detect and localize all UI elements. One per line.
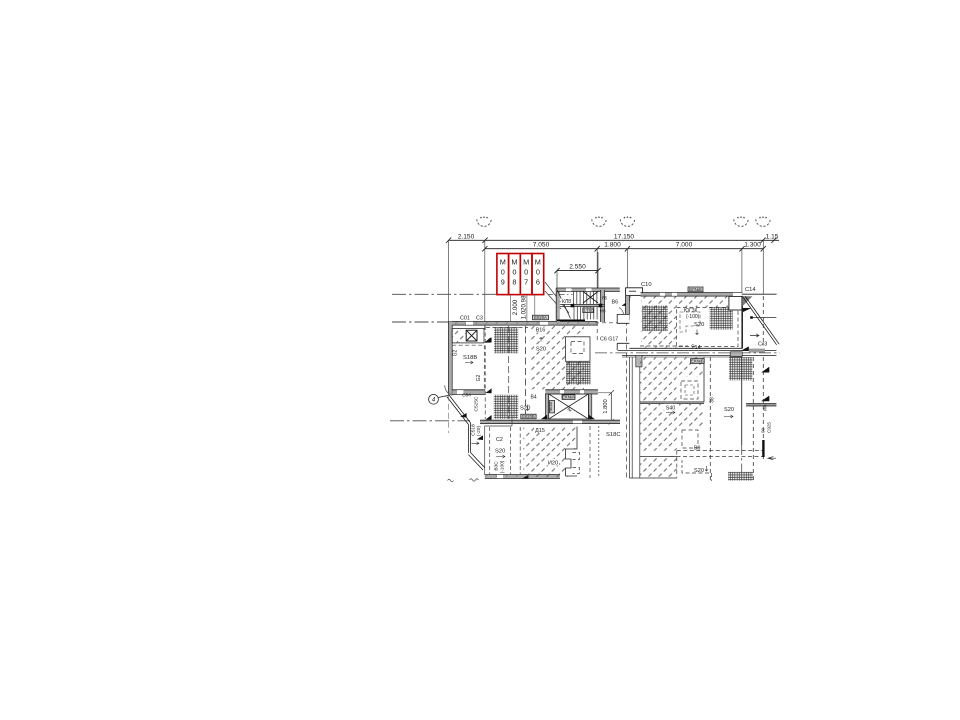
svg-text:2.150: 2.150 — [458, 233, 475, 240]
svg-text:2.550: 2.550 — [569, 263, 586, 270]
svg-text:C525C: C525C — [474, 396, 480, 411]
svg-text:S20: S20 — [724, 407, 734, 413]
svg-text:G2: G2 — [476, 374, 482, 381]
svg-text:В6: В6 — [612, 299, 619, 305]
svg-text:№ЭА: №ЭА — [548, 401, 553, 411]
svg-text:1.020.98: 1.020.98 — [521, 295, 528, 320]
svg-text:Иб: Иб — [600, 308, 606, 313]
svg-text:КЛ8: КЛ8 — [562, 299, 571, 305]
svg-text:S20: S20 — [694, 322, 704, 328]
svg-text:ЕК№А: ЕК№А — [562, 395, 575, 400]
svg-text:0.7Х0: 0.7Х0 — [583, 308, 595, 313]
svg-text:С925: С925 — [767, 422, 772, 433]
svg-text:1.300: 1.300 — [744, 242, 761, 249]
svg-text:В16: В16 — [536, 328, 546, 334]
svg-text:Им: Им — [763, 405, 768, 411]
svg-text:1.800: 1.800 — [603, 399, 609, 414]
svg-text:C14: C14 — [745, 287, 756, 293]
svg-text:C01: C01 — [460, 316, 470, 322]
svg-text:1.800: 1.800 — [604, 242, 621, 249]
svg-text:В3С: В3С — [494, 461, 500, 471]
svg-text:C518: C518 — [471, 424, 477, 436]
svg-text:ЕК20Б: ЕК20Б — [522, 414, 535, 419]
svg-text:S20: S20 — [520, 406, 530, 412]
svg-text:ЕК20А: ЕК20А — [534, 315, 547, 320]
svg-text:В9: В9 — [694, 445, 700, 451]
svg-text:C84: C84 — [462, 393, 471, 399]
svg-text:З8: З8 — [710, 397, 716, 403]
svg-text:ЕК№Б: ЕК№Б — [691, 359, 704, 364]
svg-text:99: 99 — [761, 427, 766, 433]
svg-text:7.000: 7.000 — [676, 242, 693, 249]
svg-text:C2: C2 — [496, 437, 503, 443]
svg-text:2.000: 2.000 — [512, 299, 519, 315]
svg-text:(-100): (-100) — [686, 314, 700, 320]
svg-text:С6 G17: С6 G17 — [600, 337, 618, 343]
svg-text:S40: S40 — [666, 405, 676, 411]
svg-text:1.15: 1.15 — [766, 233, 779, 240]
svg-text:Я5: Я5 — [602, 295, 608, 300]
svg-text:Ў14: Ў14 — [691, 343, 701, 351]
svg-text:Д15: Д15 — [535, 428, 545, 434]
svg-text:7.050: 7.050 — [533, 242, 550, 249]
svg-text:(-100): (-100) — [500, 460, 506, 473]
svg-text:S20: S20 — [536, 347, 546, 353]
svg-text:17.150: 17.150 — [614, 233, 635, 240]
svg-text:И20: И20 — [548, 461, 558, 467]
svg-text:ВЛ№Б: ВЛ№Б — [689, 287, 702, 292]
svg-text:Ск3: Ск3 — [758, 342, 767, 348]
svg-text:C3: C3 — [476, 316, 483, 322]
svg-text:S18C: S18C — [606, 432, 621, 438]
svg-text:В4: В4 — [531, 395, 537, 401]
svg-text:S18B: S18B — [463, 355, 477, 361]
svg-text:G2: G2 — [452, 349, 458, 356]
svg-text:C10: C10 — [641, 282, 652, 288]
svg-text:S20: S20 — [694, 468, 704, 474]
svg-text:(-20): (-20) — [476, 426, 482, 437]
svg-text:S20: S20 — [495, 449, 505, 455]
